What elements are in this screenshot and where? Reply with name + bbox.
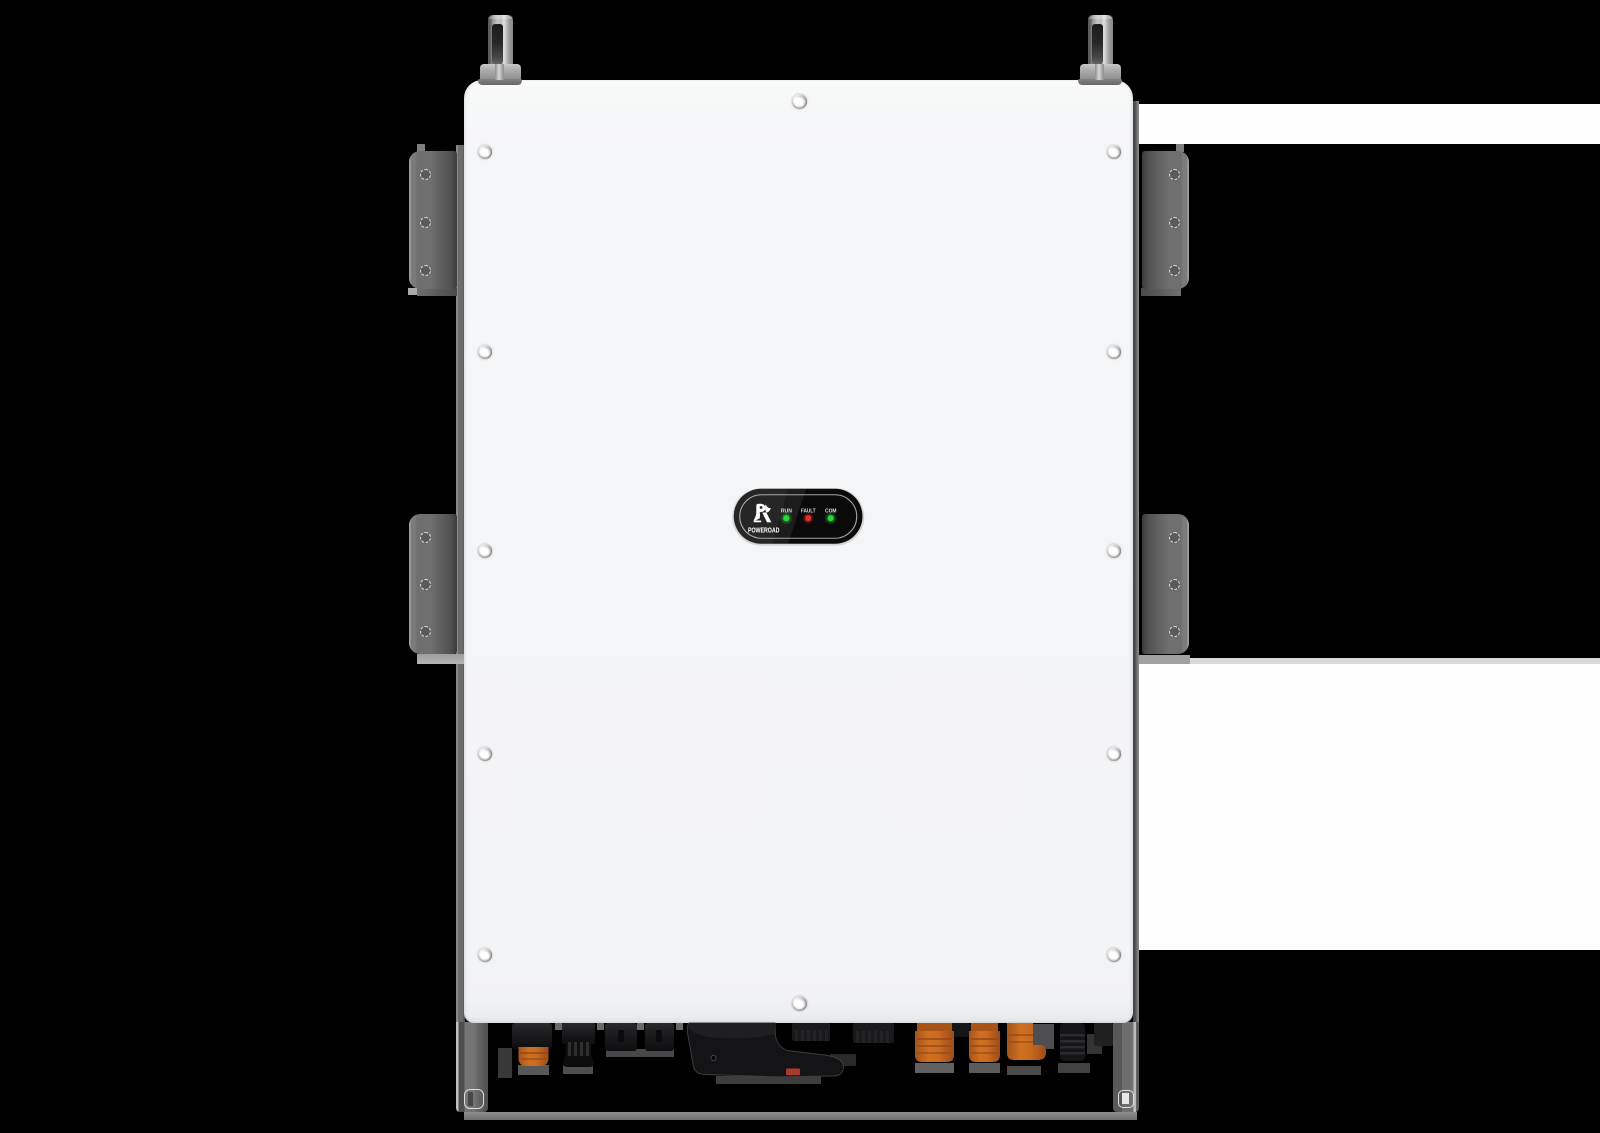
svg-text:POWEROAD: POWEROAD bbox=[748, 525, 780, 534]
